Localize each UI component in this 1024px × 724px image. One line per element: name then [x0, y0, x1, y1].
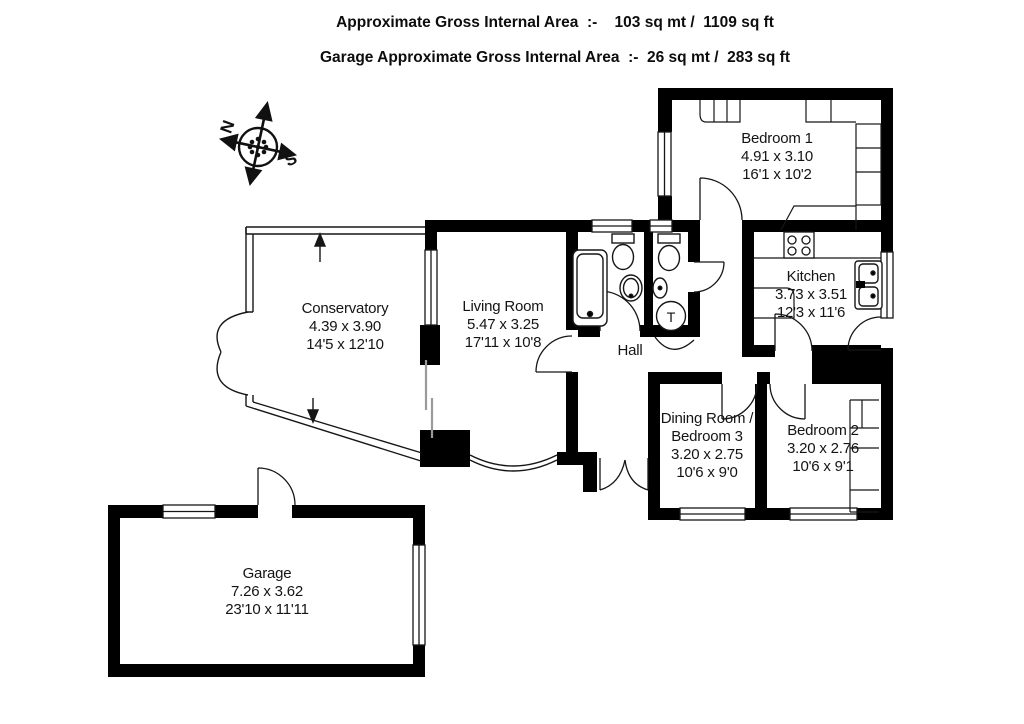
room-label-living-room: Living Room 5.47 x 3.25 17'11 x 10'8	[418, 298, 588, 352]
gutter-lines	[426, 360, 432, 438]
water-tank-icon: T	[657, 302, 686, 331]
svg-text:T: T	[667, 309, 676, 325]
compass-icon: N S	[214, 96, 303, 191]
bay-window	[470, 455, 557, 471]
basin-icon-wc	[653, 278, 667, 298]
toilet-icon-wc	[658, 234, 680, 271]
compass-south-label: S	[282, 149, 300, 171]
room-label-hall: Hall	[585, 342, 675, 360]
compass-north-label: N	[217, 118, 239, 136]
room-label-bedroom2: Bedroom 2 3.20 x 2.76 10'6 x 9'1	[738, 422, 908, 476]
floor-plan-drawing: T	[0, 0, 1024, 724]
room-label-kitchen: Kitchen 3.73 x 3.51 12'3 x 11'6	[726, 268, 896, 322]
room-label-conservatory: Conservatory 4.39 x 3.90 14'5 x 12'10	[260, 300, 430, 354]
basin-icon-bathroom	[620, 275, 642, 301]
toilet-icon-bathroom	[612, 234, 634, 270]
floorplan-page: Approximate Gross Internal Area :- 103 s…	[0, 0, 1024, 724]
room-label-garage: Garage 7.26 x 3.62 23'10 x 11'11	[182, 565, 352, 619]
room-label-bedroom1: Bedroom 1 4.91 x 3.10 16'1 x 10'2	[692, 130, 862, 184]
hob-icon	[784, 232, 814, 258]
